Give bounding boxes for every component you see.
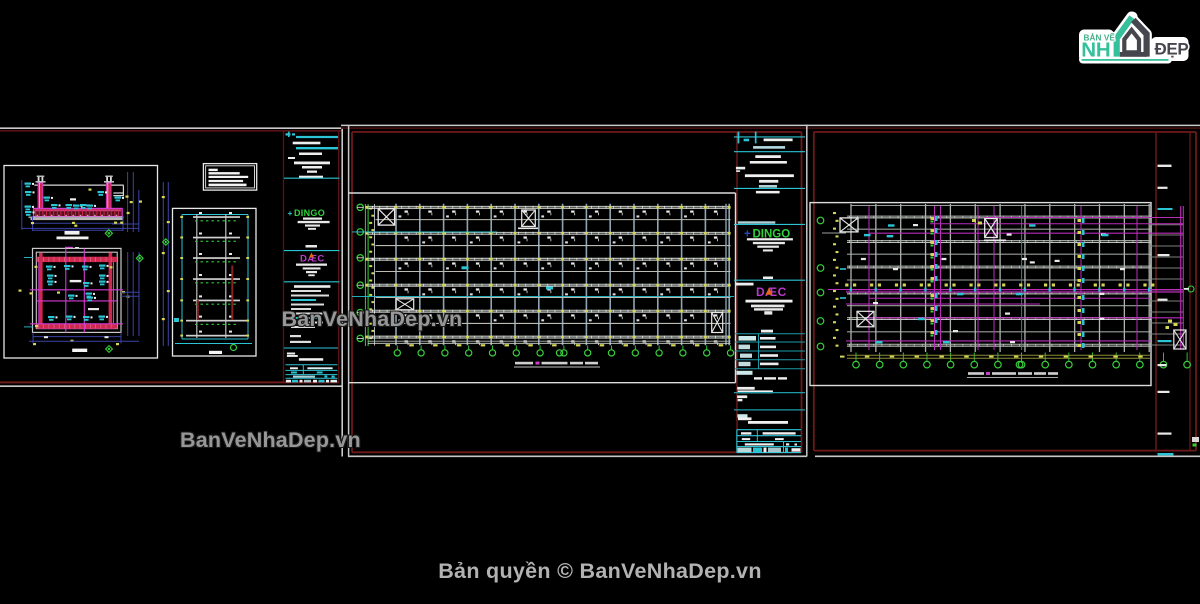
svg-text:NH: NH xyxy=(1081,39,1110,62)
svg-text:ĐẸP: ĐẸP xyxy=(1155,39,1189,58)
